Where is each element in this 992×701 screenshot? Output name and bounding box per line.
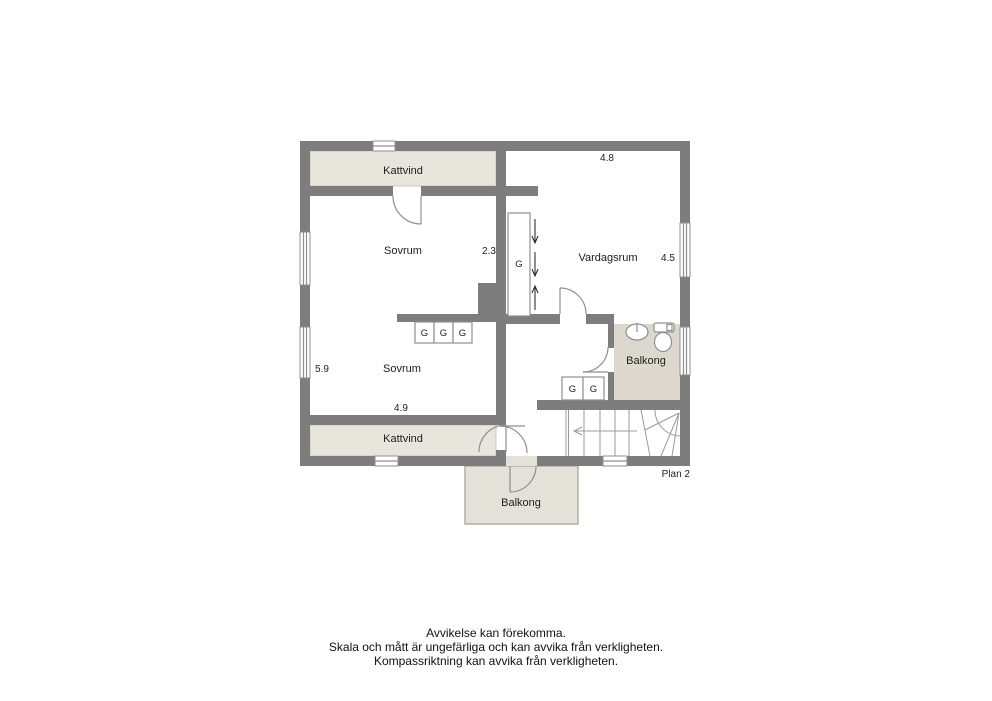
door-kattvind-top <box>393 196 421 224</box>
window-left-lower <box>300 327 310 378</box>
wardrobe-label: G <box>421 328 428 339</box>
door-balkong-bath <box>583 347 608 372</box>
wall-left <box>300 141 310 466</box>
dimension-sovrum-bottom-left: 5.9 <box>315 364 329 375</box>
wall-hall-stairs <box>537 400 690 410</box>
door-vardagsrum <box>560 288 586 314</box>
window-right-upper <box>680 223 690 277</box>
window-right-lower <box>680 327 690 375</box>
room-label-sovrum-bottom: Sovrum <box>383 363 421 375</box>
interior-walls <box>310 151 690 456</box>
dimension-vardagsrum-top: 4.8 <box>600 153 614 164</box>
wardrobe-label: G <box>459 328 466 339</box>
wardrobe-label: G <box>440 328 447 339</box>
disclaimer: Avvikelse kan förekomma. Skala och mått … <box>329 626 663 668</box>
wall-bath-stub-lower <box>608 372 614 400</box>
floorplan-drawing: G G G G G G <box>0 0 992 701</box>
wardrobe-label: G <box>590 384 597 395</box>
wall-center-vertical-foot <box>496 450 506 456</box>
window-bottom-left <box>375 456 398 466</box>
room-label-vardagsrum: Vardagsrum <box>578 252 637 264</box>
room-label-kattvind-bottom: Kattvind <box>383 433 423 445</box>
room-label-sovrum-top: Sovrum <box>384 245 422 257</box>
wall-top <box>300 141 690 151</box>
wall-kattvind-bottom-top <box>310 415 496 425</box>
wall-bath-stub-upper <box>608 324 614 348</box>
stairs-direction-arrow <box>574 427 637 435</box>
wardrobe-tall-label: G <box>515 259 522 270</box>
wall-center-vertical-upper <box>496 151 506 283</box>
dimension-sovrum-top: 2.3 <box>482 246 496 257</box>
wardrobe-pair-hall: G G <box>562 377 604 400</box>
direction-arrows <box>532 219 538 310</box>
room-label-balkong-bath: Balkong <box>626 355 666 367</box>
window-left-upper <box>300 232 310 285</box>
window-bottom-right <box>603 456 627 466</box>
room-label-balkong-lower: Balkong <box>501 497 541 509</box>
wall-vardagsrum-bottom-b <box>586 314 614 324</box>
door-vestibule-b <box>500 426 527 453</box>
wall-kattvind-top-b <box>421 186 506 196</box>
wall-stub-vardagsrum <box>506 186 538 196</box>
disclaimer-line-1: Avvikelse kan förekomma. <box>426 626 566 640</box>
room-label-kattvind-top: Kattvind <box>383 165 423 177</box>
room-balkong-lower-floor <box>465 466 578 524</box>
floorplan-page: G G G G G G <box>0 0 992 701</box>
wardrobe-label: G <box>569 384 576 395</box>
wardrobe-row: G G G <box>415 322 472 343</box>
plan-label: Plan 2 <box>662 469 691 480</box>
wall-kattvind-top-a <box>310 186 393 196</box>
wall-right <box>680 141 690 466</box>
disclaimer-line-3: Kompassriktning kan avvika från verkligh… <box>374 654 618 668</box>
wall-bottom-left <box>300 456 506 466</box>
balcony-door-threshold <box>506 456 537 466</box>
disclaimer-line-2: Skala och mått är ungefärliga och kan av… <box>329 640 663 654</box>
window-top <box>373 141 395 151</box>
dimension-vardagsrum-right: 4.5 <box>661 253 675 264</box>
stairs <box>566 410 680 456</box>
dimension-sovrum-bottom-width: 4.9 <box>394 403 408 414</box>
wall-sovrum-divider <box>397 314 496 322</box>
wall-center-vertical-lower <box>496 322 506 425</box>
